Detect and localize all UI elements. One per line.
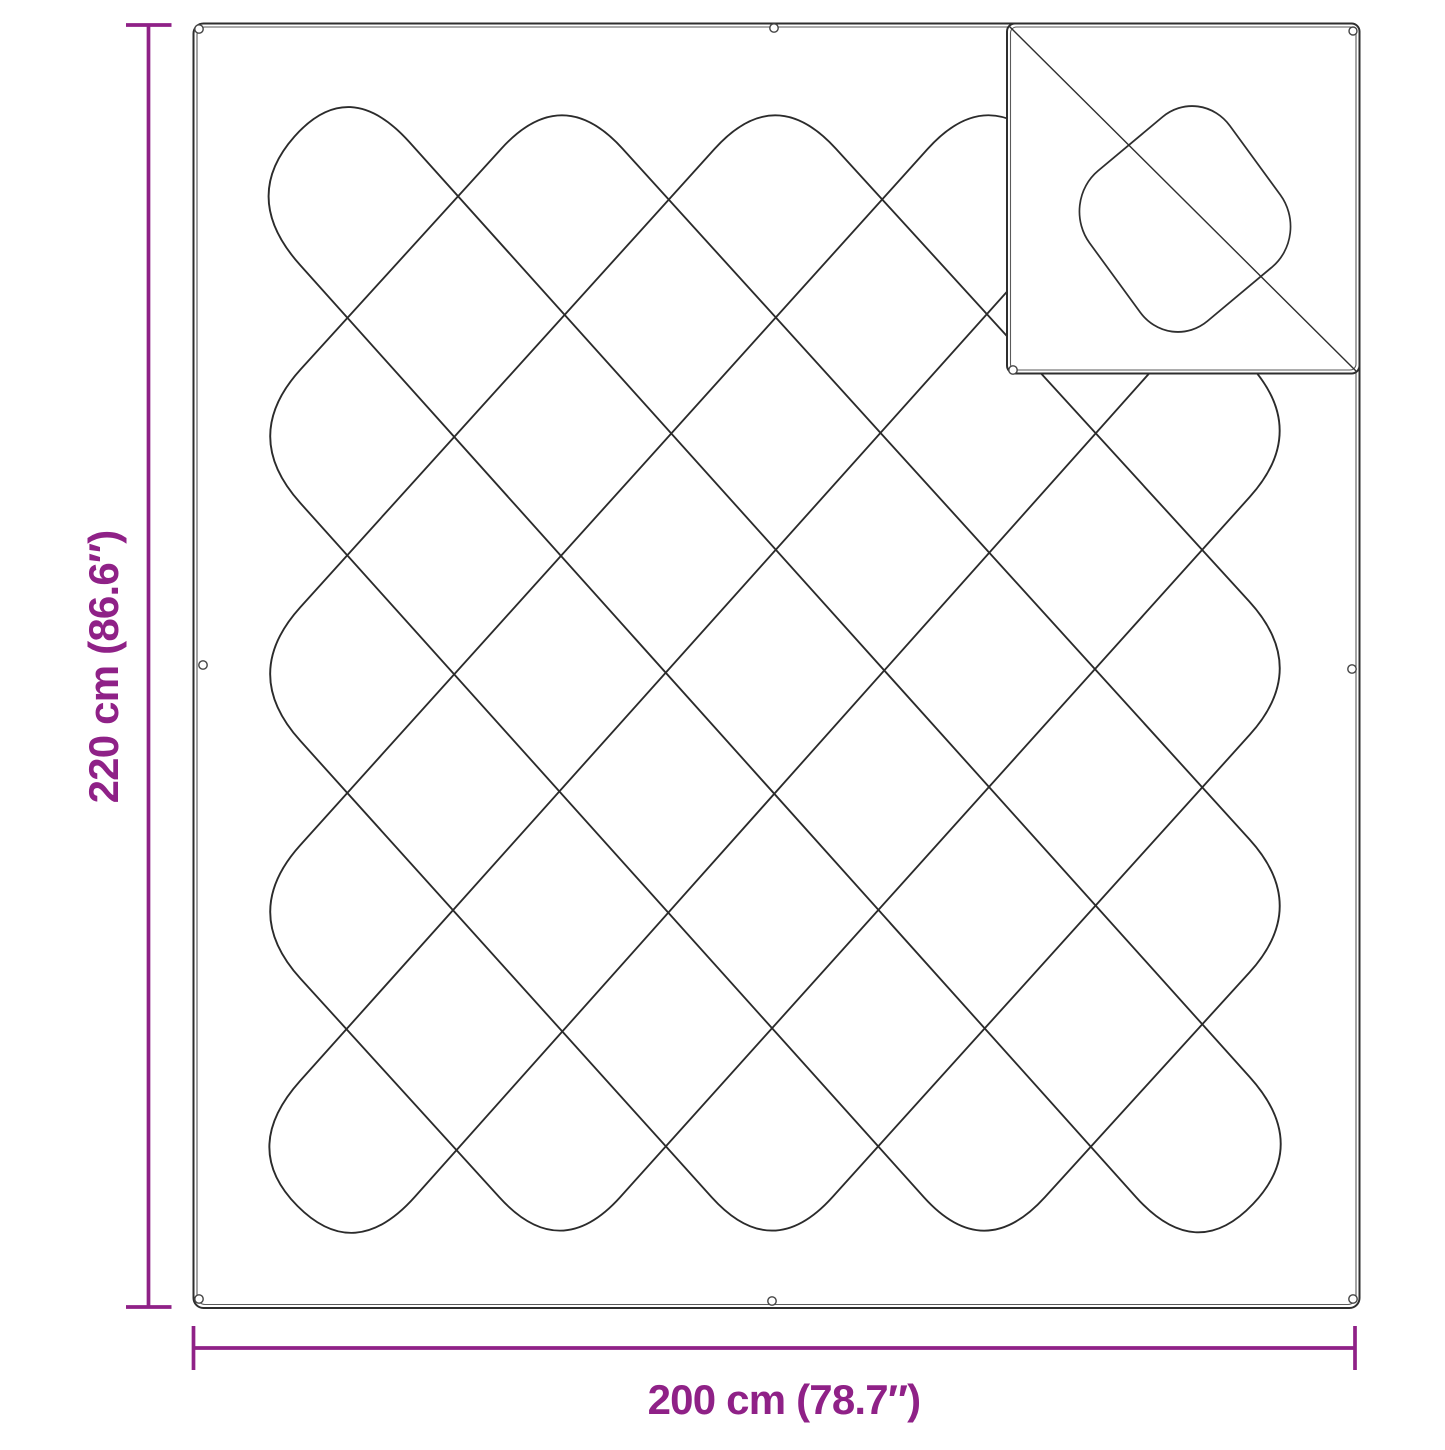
svg-text:200 cm (78.7″): 200 cm (78.7″) — [648, 1376, 921, 1423]
svg-text:220 cm (86.6″): 220 cm (86.6″) — [80, 531, 127, 804]
